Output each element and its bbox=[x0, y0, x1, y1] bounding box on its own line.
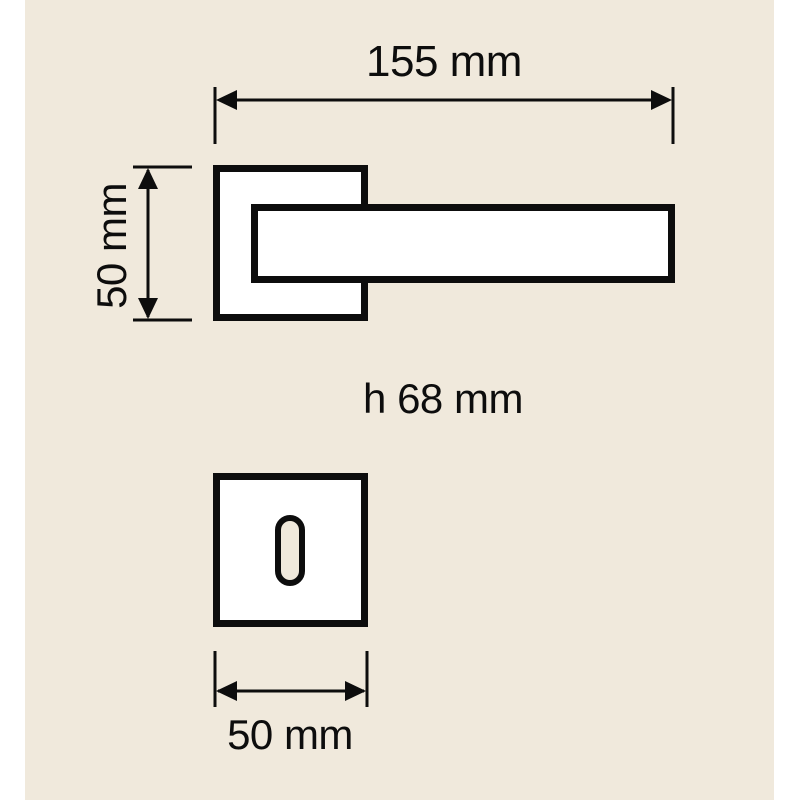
handle-lever bbox=[255, 208, 672, 280]
escutcheon-width-label: 50 mm bbox=[227, 711, 353, 758]
rose-height-label: 50 mm bbox=[88, 183, 135, 309]
keyhole-cutout bbox=[278, 518, 302, 583]
handle-height-label: h 68 mm bbox=[363, 375, 523, 422]
total-width-label: 155 mm bbox=[366, 37, 522, 86]
handle-technical-drawing: 155 mm 50 mm h 68 mm 50 mm bbox=[0, 0, 800, 800]
product-dimension-diagram: 155 mm 50 mm h 68 mm 50 mm bbox=[0, 0, 800, 800]
